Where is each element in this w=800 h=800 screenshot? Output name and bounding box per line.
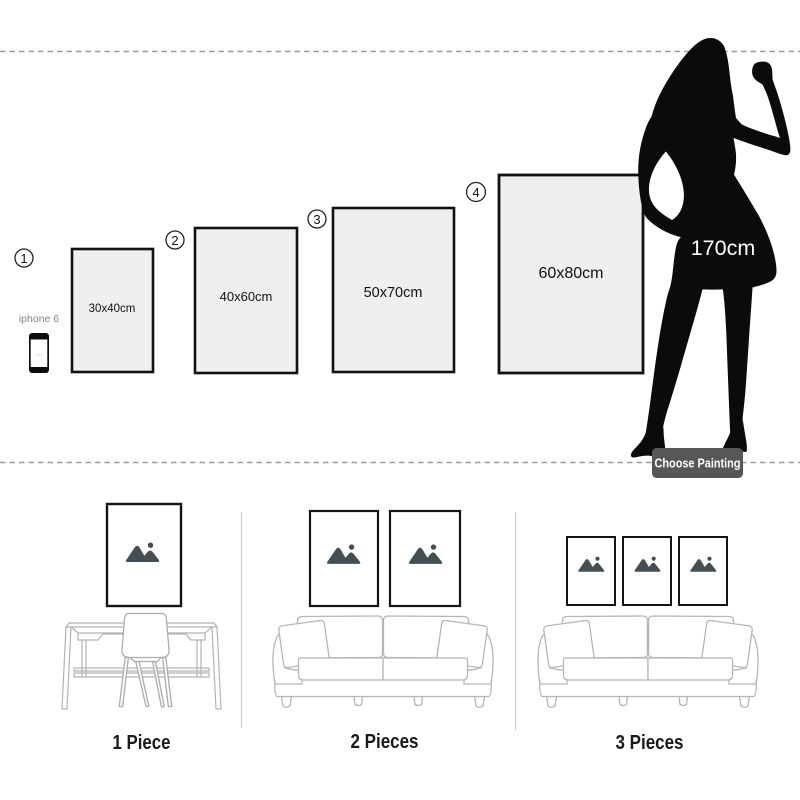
svg-text:170cm: 170cm (691, 236, 756, 260)
svg-text:50x70cm: 50x70cm (364, 285, 423, 301)
svg-text:40x60cm: 40x60cm (220, 289, 273, 304)
svg-text:iphone 6: iphone 6 (19, 313, 59, 325)
svg-text:2: 2 (171, 233, 178, 248)
svg-text:1 Piece: 1 Piece (113, 732, 171, 754)
svg-text:4: 4 (472, 185, 479, 200)
svg-text:Choose Painting: Choose Painting (655, 456, 741, 471)
svg-text:3 Pieces: 3 Pieces (616, 732, 684, 754)
svg-text:30x40cm: 30x40cm (89, 303, 136, 315)
svg-text:2 Pieces: 2 Pieces (351, 731, 419, 753)
svg-text:3: 3 (313, 212, 320, 227)
svg-text:60x80cm: 60x80cm (539, 265, 604, 282)
svg-text:1: 1 (20, 251, 27, 266)
